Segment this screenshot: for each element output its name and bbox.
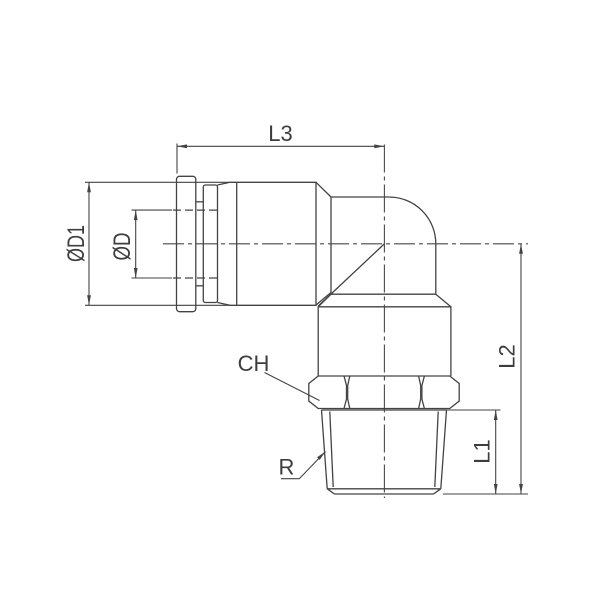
svg-text:CH: CH — [238, 351, 270, 376]
svg-text:L2: L2 — [495, 344, 520, 368]
svg-text:L1: L1 — [470, 439, 495, 463]
svg-text:ØD: ØD — [109, 233, 136, 261]
svg-text:R: R — [279, 454, 295, 479]
svg-text:L3: L3 — [268, 121, 292, 146]
svg-text:ØD1: ØD1 — [63, 225, 90, 262]
